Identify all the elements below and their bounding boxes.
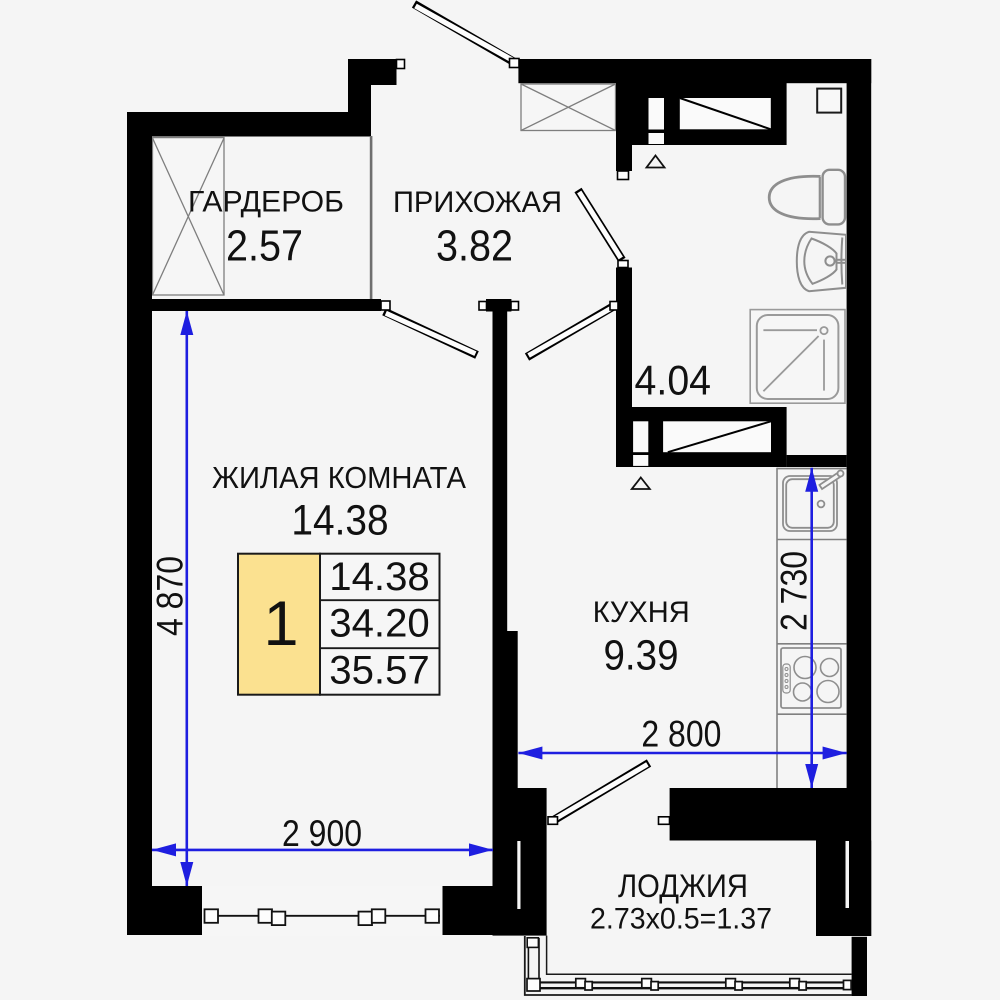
svg-text:35.57: 35.57 <box>329 648 430 692</box>
svg-text:КУХНЯ: КУХНЯ <box>593 596 690 629</box>
svg-text:14.38: 14.38 <box>329 555 430 599</box>
svg-text:4.04: 4.04 <box>635 357 712 404</box>
svg-text:34.20: 34.20 <box>329 602 430 646</box>
svg-text:2 730: 2 730 <box>774 551 815 631</box>
svg-text:9.39: 9.39 <box>604 632 679 679</box>
svg-text:2.57: 2.57 <box>226 222 303 271</box>
svg-text:3.82: 3.82 <box>436 222 513 271</box>
svg-text:4 870: 4 870 <box>150 556 191 636</box>
svg-text:ГАРДЕРОБ: ГАРДЕРОБ <box>188 186 344 219</box>
svg-text:1: 1 <box>263 589 298 659</box>
svg-text:2.73x0.5=1.37: 2.73x0.5=1.37 <box>590 903 772 936</box>
svg-text:2 900: 2 900 <box>282 813 362 854</box>
svg-text:2 800: 2 800 <box>641 713 721 754</box>
svg-text:ЖИЛАЯ КОМНАТА: ЖИЛАЯ КОМНАТА <box>212 460 466 495</box>
svg-text:14.38: 14.38 <box>291 498 388 545</box>
svg-text:ЛОДЖИЯ: ЛОДЖИЯ <box>618 868 748 904</box>
svg-text:ПРИХОЖАЯ: ПРИХОЖАЯ <box>393 186 562 219</box>
